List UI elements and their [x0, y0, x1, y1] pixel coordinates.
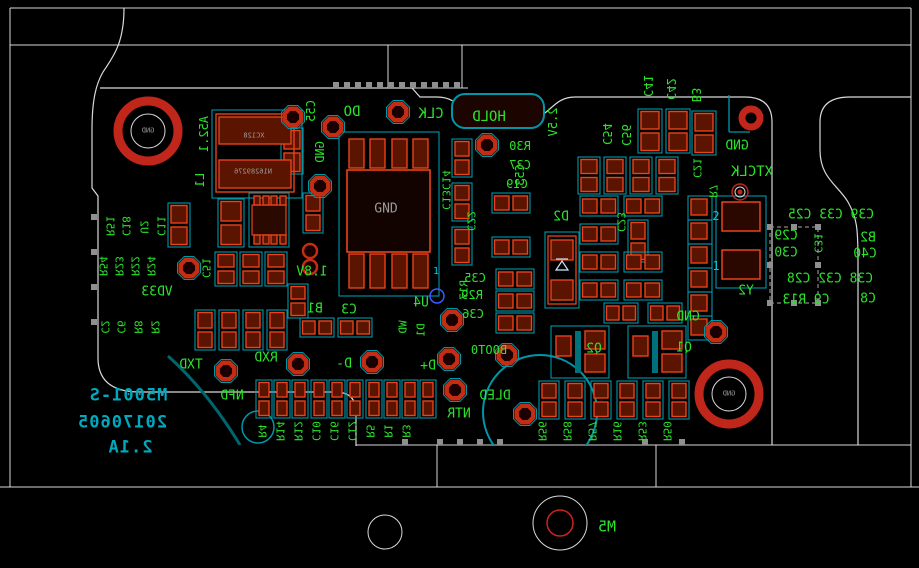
silkscreen-label-c42[interactable]: C42 — [665, 78, 677, 100]
silkscreen-label-c56[interactable]: C56 — [620, 124, 632, 146]
pcb-cad-viewport: DOCLKHOLDGNDXTCLKR30C37C19D2C35R29C36BOO… — [0, 0, 919, 568]
silkscreen-label-n16289276[interactable]: N16289276 — [234, 169, 272, 176]
silkscreen-label-boot0[interactable]: BOOT0 — [471, 344, 507, 356]
silkscreen-label-c23[interactable]: C23 — [616, 212, 627, 232]
silkscreen-label-r2[interactable]: R2 — [150, 320, 161, 333]
silkscreen-label-r56[interactable]: R56 — [537, 421, 548, 441]
silkscreen-label-txd[interactable]: TXD — [179, 359, 202, 372]
silkscreen-label-r54[interactable]: R54 — [98, 256, 109, 276]
silkscreen-label-b2[interactable]: B2 — [860, 232, 876, 245]
silkscreen-label-1[interactable]: 1 — [712, 260, 719, 272]
silkscreen-label-c31[interactable]: C31 — [813, 233, 824, 253]
silkscreen-label-r23[interactable]: R23 — [114, 256, 125, 276]
silkscreen-label-c13c14[interactable]: C13C14 — [441, 170, 452, 210]
silkscreen-label-q2[interactable]: Q2 — [586, 343, 602, 356]
silkscreen-label-2[interactable]: 2 — [712, 210, 719, 222]
silkscreen-label-c2[interactable]: C2 — [100, 320, 111, 333]
silkscreen-label-c10[interactable]: C10 — [311, 421, 322, 441]
silkscreen-label-c39-c33-c25[interactable]: C39 C33 C25 — [788, 209, 874, 222]
silkscreen-label-nfd[interactable]: NFD — [220, 390, 243, 403]
silkscreen-label-c22[interactable]: C22 — [466, 211, 477, 231]
silkscreen-label-b3[interactable]: B3 — [690, 88, 702, 102]
silkscreen-label-c9-r13[interactable]: C9 R13 — [783, 294, 830, 307]
silkscreen-label-vd33[interactable]: VD33 — [141, 286, 172, 299]
silkscreen-label-r4[interactable]: R4 — [257, 424, 268, 437]
silkscreen-label-gnd[interactable]: GND — [374, 203, 397, 216]
silkscreen-label-a52-1[interactable]: A52.1 — [198, 116, 210, 152]
silkscreen-label-r17[interactable]: R17 — [459, 280, 470, 300]
silkscreen-label-y2[interactable]: Y2 — [738, 285, 754, 298]
silkscreen-label-c40[interactable]: C40 — [853, 248, 876, 261]
silkscreen-label-gnd[interactable]: GND — [142, 128, 155, 135]
silkscreen-label-gnd[interactable]: GND — [314, 141, 326, 163]
silkscreen-label-r12[interactable]: R12 — [293, 421, 304, 441]
silkscreen-label-c30[interactable]: C30 — [774, 247, 797, 260]
silkscreen-label-c54[interactable]: C54 — [601, 123, 613, 145]
silkscreen-label-d1[interactable]: D1 — [416, 323, 427, 336]
silkscreen-label-r14[interactable]: R14 — [275, 421, 286, 441]
silkscreen-label-r57[interactable]: R57 — [587, 421, 598, 441]
silkscreen-label-xtclk[interactable]: XTCLK — [731, 165, 773, 179]
silkscreen-label-c51[interactable]: C51 — [201, 258, 212, 278]
silkscreen-label-d-[interactable]: D+ — [420, 360, 436, 373]
silkscreen-label-dled[interactable]: DLED — [479, 390, 510, 403]
silkscreen-label-r16[interactable]: R16 — [612, 421, 623, 441]
silkscreen-label-r22[interactable]: R22 — [130, 256, 141, 276]
silkscreen-label-b1[interactable]: B1 — [307, 303, 323, 316]
silkscreen-label-do[interactable]: DO — [344, 105, 361, 119]
silkscreen-label-d-[interactable]: D- — [336, 358, 352, 371]
silkscreen-label-xc128[interactable]: XC128 — [243, 133, 264, 140]
silkscreen-label-r53[interactable]: R53 — [637, 421, 648, 441]
silkscreen-label-c8[interactable]: C8 — [860, 293, 876, 306]
silkscreen-label-hold[interactable]: HOLD — [472, 110, 506, 124]
silkscreen-label-gnd[interactable]: GND — [723, 391, 736, 398]
silkscreen-label-c18[interactable]: C18 — [121, 216, 132, 236]
silkscreen-label-c11[interactable]: C11 — [156, 216, 167, 236]
silkscreen-label-r8[interactable]: R8 — [133, 320, 144, 333]
silkscreen-label-20170605[interactable]: 20170605 — [77, 415, 167, 432]
silkscreen-label-m5001-s[interactable]: M5001-S — [89, 388, 168, 405]
silkscreen-label-l1[interactable]: L1 — [194, 173, 206, 187]
silkscreen-layer: DOCLKHOLDGNDXTCLKR30C37C19D2C35R29C36BOO… — [0, 0, 919, 568]
silkscreen-label-2-1a[interactable]: 2.1A — [108, 440, 153, 457]
silkscreen-label-c55[interactable]: C55 — [305, 100, 317, 122]
silkscreen-label-r51[interactable]: R51 — [105, 216, 116, 236]
silkscreen-label-c41[interactable]: C41 — [642, 75, 654, 97]
silkscreen-label-gnd[interactable]: GND — [676, 311, 699, 324]
silkscreen-label-r1[interactable]: R1 — [383, 424, 394, 437]
silkscreen-label-c3[interactable]: C3 — [341, 304, 357, 317]
silkscreen-label-r30[interactable]: R30 — [509, 140, 531, 152]
silkscreen-label-q1[interactable]: Q1 — [676, 342, 692, 355]
silkscreen-label-m5[interactable]: M5 — [598, 520, 616, 535]
silkscreen-label-r7[interactable]: R7 — [708, 184, 719, 197]
silkscreen-label-c6[interactable]: C6 — [116, 320, 127, 333]
silkscreen-label-1[interactable]: 1 — [433, 267, 439, 277]
silkscreen-label-c36[interactable]: C36 — [462, 308, 484, 320]
silkscreen-label-c16[interactable]: C16 — [329, 421, 340, 441]
silkscreen-label-1-8v[interactable]: 1.8V — [296, 266, 327, 279]
silkscreen-label-2-5v[interactable]: 2.5V — [547, 108, 559, 137]
silkscreen-label-c21[interactable]: C21 — [692, 158, 703, 178]
silkscreen-label-r58[interactable]: R58 — [562, 421, 573, 441]
silkscreen-label-r3[interactable]: R3 — [401, 424, 412, 437]
silkscreen-label-u2[interactable]: U2 — [139, 220, 150, 233]
silkscreen-label-r24[interactable]: R24 — [146, 256, 157, 276]
silkscreen-label-c12[interactable]: C12 — [347, 421, 358, 441]
silkscreen-label-ntr[interactable]: NTR — [447, 408, 470, 421]
silkscreen-label-d2[interactable]: D2 — [553, 211, 569, 224]
silkscreen-label-gnd[interactable]: GND — [725, 140, 748, 153]
silkscreen-label-r50[interactable]: R50 — [662, 421, 673, 441]
silkscreen-label-c38-c32-c28[interactable]: C38 C32 C28 — [787, 273, 873, 286]
silkscreen-label-c29[interactable]: C29 — [774, 230, 797, 243]
silkscreen-label-wd[interactable]: WD — [398, 320, 409, 333]
silkscreen-label-rxd[interactable]: RXD — [254, 352, 277, 365]
silkscreen-label-c53[interactable]: C53 — [514, 164, 526, 186]
silkscreen-label-r5[interactable]: R5 — [365, 424, 376, 437]
silkscreen-label-u4[interactable]: U4 — [413, 297, 429, 310]
silkscreen-label-clk[interactable]: CLK — [418, 107, 443, 121]
